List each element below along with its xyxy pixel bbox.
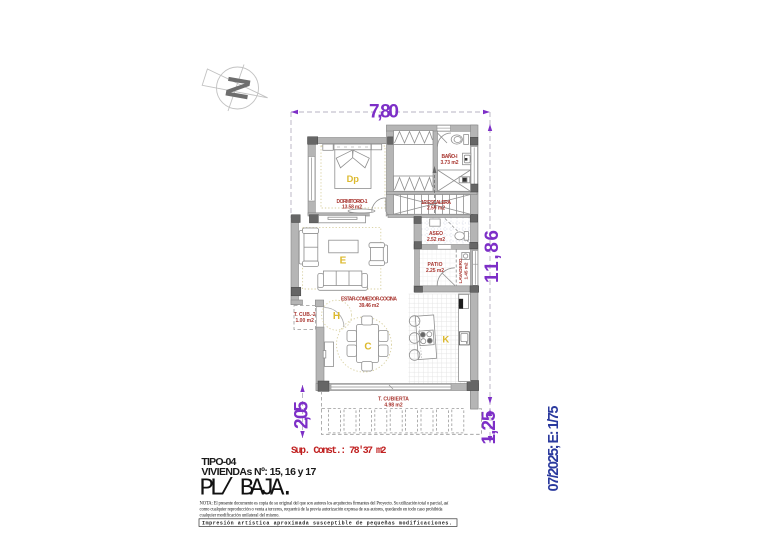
svg-text:4.98 m2: 4.98 m2 (384, 402, 403, 408)
svg-text:11,86: 11,86 (482, 230, 503, 283)
svg-text:K: K (442, 335, 449, 346)
svg-text:2.25 m2: 2.25 m2 (426, 268, 444, 274)
svg-text:como cualquier reproducción o: como cualquier reproducción o venta a te… (200, 508, 444, 513)
svg-text:C: C (364, 342, 371, 353)
svg-text:13.58 m2: 13.58 m2 (342, 205, 362, 211)
svg-text:Impresión artística aproximada: Impresión artística aproximada susceptib… (202, 520, 452, 526)
svg-text:NOTA: El presente documento es: NOTA: El presente documento es copia de … (200, 502, 450, 507)
svg-text:7,80: 7,80 (369, 102, 399, 123)
svg-text:ESTAR-COMEDOR-COCINA: ESTAR-COMEDOR-COCINA (341, 297, 397, 303)
svg-text:2,05: 2,05 (292, 401, 313, 429)
svg-text:3.73 m2: 3.73 m2 (441, 160, 459, 166)
svg-text:2.59 m2: 2.59 m2 (427, 205, 445, 211)
svg-text:1.00 m2: 1.00 m2 (296, 318, 315, 324)
svg-text:2.52 m2: 2.52 m2 (427, 237, 445, 243)
svg-text:H: H (333, 311, 340, 322)
svg-text:PL/ BAJA.: PL/ BAJA. (200, 476, 295, 503)
svg-text:Sup. Const.: 78'37 m2: Sup. Const.: 78'37 m2 (291, 445, 387, 457)
svg-text:BAÑO-I: BAÑO-I (442, 153, 459, 160)
svg-text:39.46 m2: 39.46 m2 (359, 303, 379, 309)
svg-text:LAVADERO: LAVADERO (458, 258, 464, 283)
svg-text:E: E (340, 256, 347, 267)
svg-text:Dp: Dp (347, 174, 360, 184)
svg-text:07/2025; E: 1/75: 07/2025; E: 1/75 (546, 406, 562, 492)
svg-text:1,25: 1,25 (479, 410, 500, 444)
svg-text:cualquier modificación unilate: cualquier modificación unilateral del mi… (200, 514, 280, 519)
svg-text:1.45 m2: 1.45 m2 (464, 262, 470, 279)
